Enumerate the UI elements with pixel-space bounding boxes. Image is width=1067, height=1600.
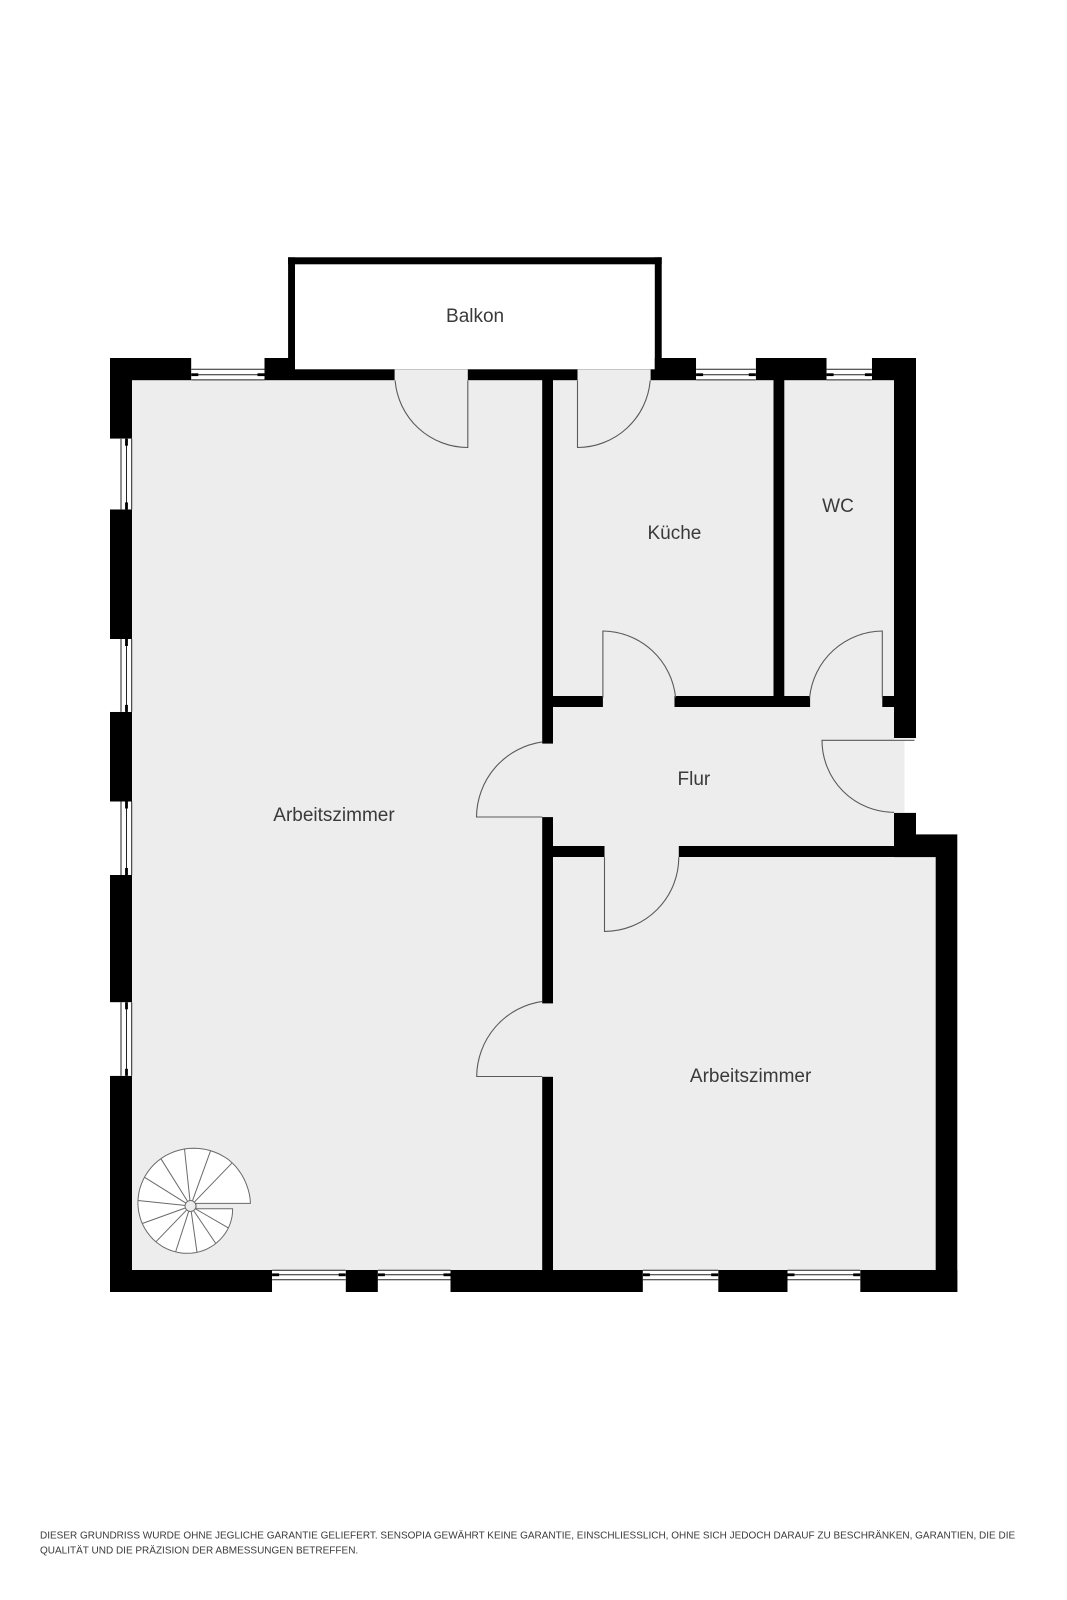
svg-text:WC: WC: [822, 496, 854, 517]
svg-text:Arbeitszimmer: Arbeitszimmer: [690, 1066, 812, 1087]
svg-text:Arbeitszimmer: Arbeitszimmer: [273, 805, 395, 826]
svg-text:Küche: Küche: [647, 523, 701, 544]
svg-text:Flur: Flur: [678, 769, 711, 790]
svg-text:Balkon: Balkon: [446, 306, 504, 327]
svg-text:DIESER GRUNDRISS WURDE OHNE JE: DIESER GRUNDRISS WURDE OHNE JEGLICHE GAR…: [40, 1530, 1016, 1542]
svg-text:QUALITÄT UND DIE PRÄZISION DER: QUALITÄT UND DIE PRÄZISION DER ABMESSUNG…: [40, 1545, 358, 1557]
